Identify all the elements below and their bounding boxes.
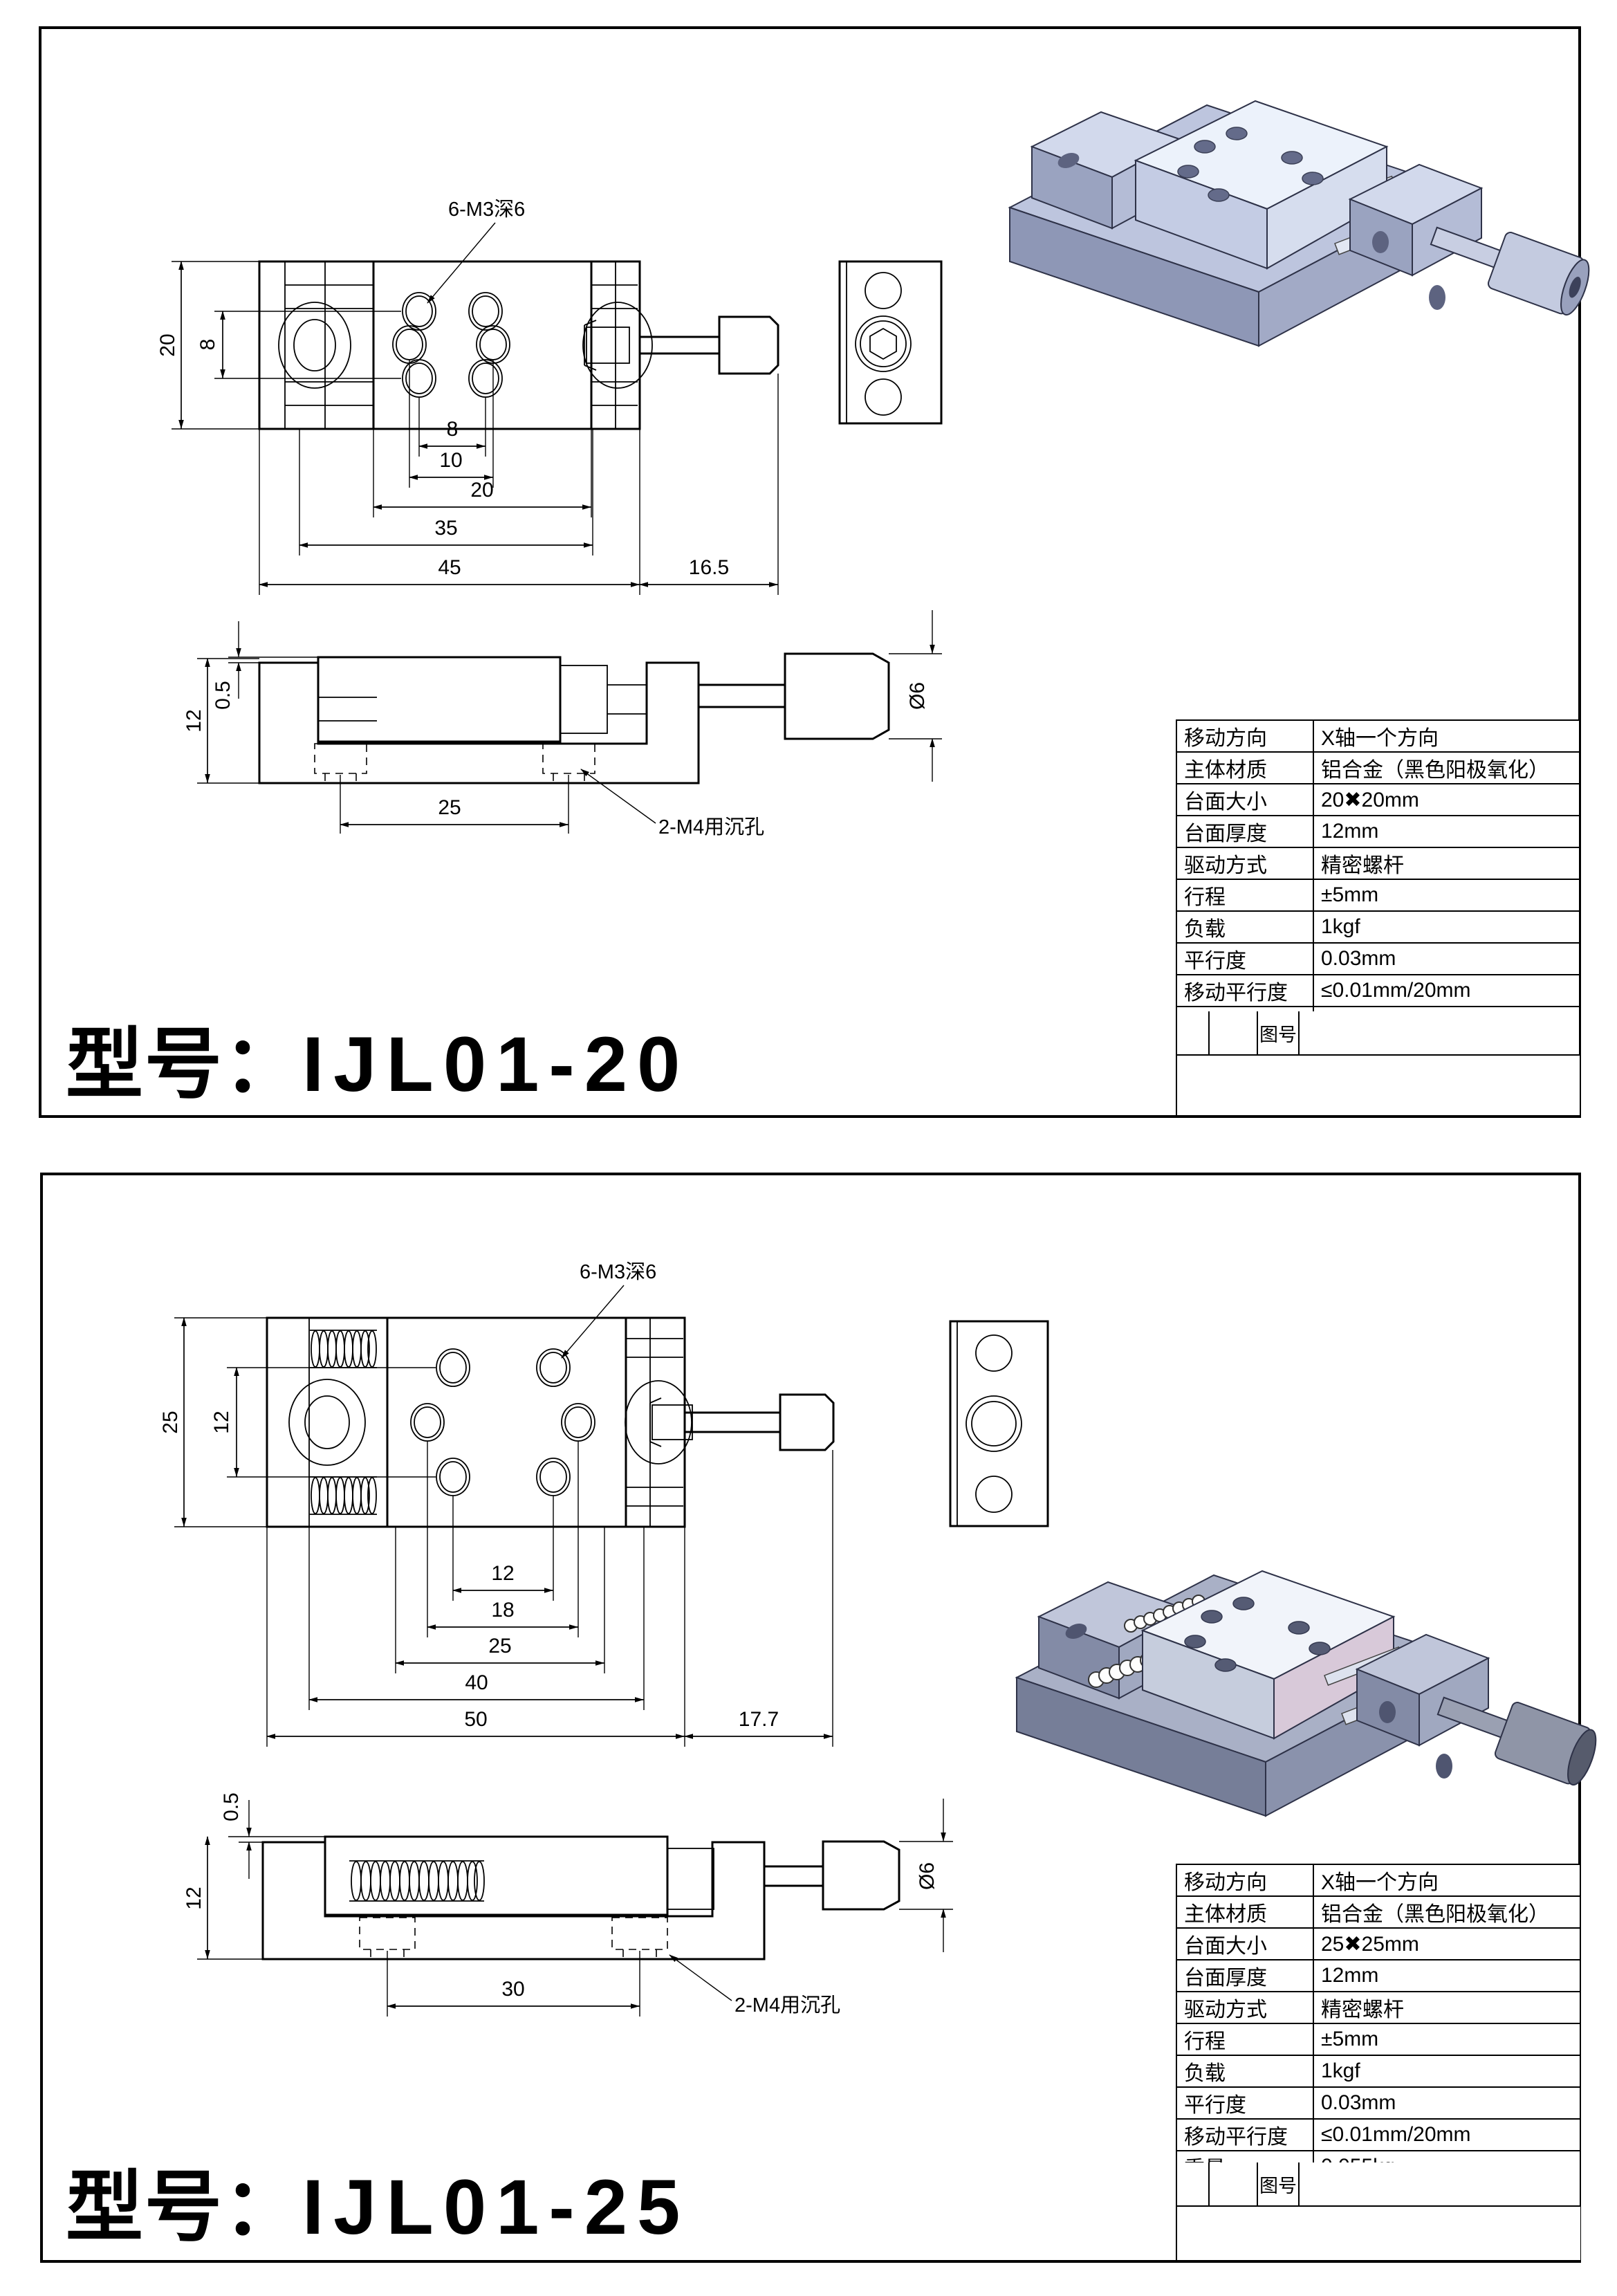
spec-label: 移动平行度 [1176, 2119, 1313, 2151]
view-top-20: 6-M3深6 20 8 8 10 20 35 45 [156, 199, 778, 595]
spec-label: 台面大小 [1176, 1928, 1313, 1960]
spec-label: 台面厚度 [1176, 1960, 1313, 1992]
spec-label: 行程 [1176, 879, 1313, 911]
spec-value: 25✖25mm [1313, 1928, 1580, 1960]
dim-holerows-25: 12 [210, 1411, 233, 1433]
spec-label: 平行度 [1176, 2087, 1313, 2119]
spec-row: 移动方向X轴一个方向 [1176, 720, 1580, 752]
spec-row: 驱动方式精密螺杆 [1176, 1992, 1580, 2023]
spec-label: 移动方向 [1176, 720, 1313, 752]
spec-label: 移动平行度 [1176, 975, 1313, 1007]
spec-row: 平行度0.03mm [1176, 943, 1580, 975]
spec-value: 精密螺杆 [1313, 1992, 1580, 2023]
model-title-25: 型号：IJL01-25 [66, 2145, 690, 2257]
spec-row: 台面厚度12mm [1176, 816, 1580, 847]
cone-symbol-cell [1210, 2162, 1258, 2205]
spec-label: 行程 [1176, 2023, 1313, 2055]
dim-20-20: 20 [470, 479, 493, 502]
m3-holes-25 [411, 1349, 595, 1496]
spec-row: 负载1kgf [1176, 911, 1580, 943]
spec-row: 移动方向X轴一个方向 [1176, 1864, 1580, 1896]
spec-label: 负载 [1176, 2055, 1313, 2087]
dim-span-25: 30 [501, 1978, 524, 2001]
spec-label: 台面大小 [1176, 784, 1313, 816]
dim-165-20: 16.5 [689, 556, 729, 579]
dim-shaftdia-25: Ø6 [916, 1862, 939, 1890]
title-block-row-20: 图号 [1176, 1011, 1580, 1056]
title-block-empty-20 [1176, 1056, 1580, 1115]
dim-height-20: 20 [156, 333, 179, 356]
m3-holes-20 [393, 293, 510, 397]
spec-label: 台面厚度 [1176, 816, 1313, 847]
model-prefix: 型号： [66, 2164, 302, 2250]
projection-symbol-cell [1177, 1011, 1210, 1054]
spec-row: 行程±5mm [1176, 2023, 1580, 2055]
spec-value: ≤0.01mm/20mm [1313, 2119, 1580, 2151]
spec-row: 主体材质铝合金（黑色阳极氧化） [1176, 752, 1580, 784]
figure-no-value [1300, 1011, 1579, 1054]
title-block-empty-25 [1176, 2207, 1580, 2260]
spec-value: 铝合金（黑色阳极氧化） [1313, 1896, 1580, 1928]
model-number: IJL01-25 [302, 2164, 690, 2250]
projection-symbol-cell [1177, 2162, 1210, 2205]
dim-12-25: 12 [491, 1562, 514, 1585]
spec-table-20: 移动方向X轴一个方向 主体材质铝合金（黑色阳极氧化） 台面大小20✖20mm 台… [1176, 719, 1580, 1039]
spec-row: 平行度0.03mm [1176, 2087, 1580, 2119]
spec-value: 0.03mm [1313, 943, 1580, 975]
figure-no-value [1300, 2162, 1580, 2205]
view-side-25: 0.5 12 30 2-M4用沉孔 Ø6 [183, 1792, 953, 2017]
spec-value: 1kgf [1313, 2055, 1580, 2087]
figure-no-label: 图号 [1258, 1011, 1300, 1054]
spec-label: 负载 [1176, 911, 1313, 943]
view-end-25 [950, 1321, 1048, 1526]
render-3d-20 [1010, 101, 1595, 346]
spec-label: 移动方向 [1176, 1864, 1313, 1896]
spec-row: 移动平行度≤0.01mm/20mm [1176, 2119, 1580, 2151]
counterbore-note-25: 2-M4用沉孔 [734, 1994, 840, 2017]
spec-row: 行程±5mm [1176, 879, 1580, 911]
dim-thickness-25: 12 [183, 1886, 205, 1909]
dim-40-25: 40 [465, 1671, 488, 1694]
model-number: IJL01-20 [302, 1021, 690, 1108]
spec-value: 20✖20mm [1313, 784, 1580, 816]
spec-value: 铝合金（黑色阳极氧化） [1313, 752, 1580, 784]
dim-thickness-20: 12 [183, 709, 205, 732]
spec-row: 台面大小25✖25mm [1176, 1928, 1580, 1960]
spec-table-25: 移动方向X轴一个方向 主体材质铝合金（黑色阳极氧化） 台面大小25✖25mm 台… [1176, 1864, 1581, 2183]
title-block-row-25: 图号 [1176, 2162, 1581, 2207]
dim-177-25: 17.7 [739, 1708, 779, 1731]
model-prefix: 型号： [66, 1021, 302, 1108]
spec-row: 移动平行度≤0.01mm/20mm [1176, 975, 1580, 1007]
render-3d-25 [1017, 1571, 1602, 1816]
spec-label: 平行度 [1176, 943, 1313, 975]
spec-row: 台面大小20✖20mm [1176, 784, 1580, 816]
spec-value: 12mm [1313, 1960, 1580, 1992]
spec-row: 负载1kgf [1176, 2055, 1580, 2087]
dim-step-25: 0.5 [220, 1792, 243, 1821]
dim-shaftdia-20: Ø6 [906, 682, 929, 710]
spec-value: 0.03mm [1313, 2087, 1580, 2119]
figure-no-label: 图号 [1258, 2162, 1300, 2205]
spec-value: 精密螺杆 [1313, 847, 1580, 879]
dim-span-20: 25 [438, 796, 461, 819]
dim-height-25: 25 [159, 1411, 182, 1433]
spec-label: 主体材质 [1176, 752, 1313, 784]
thread-note-25: 6-M3深6 [580, 1261, 656, 1283]
model-title-20: 型号：IJL01-20 [66, 1002, 690, 1114]
spec-row: 台面厚度12mm [1176, 1960, 1580, 1992]
dim-35-20: 35 [434, 517, 457, 540]
spec-value: ±5mm [1313, 879, 1580, 911]
dim-10-20: 10 [439, 449, 462, 472]
spec-row: 驱动方式精密螺杆 [1176, 847, 1580, 879]
spec-row: 主体材质铝合金（黑色阳极氧化） [1176, 1896, 1580, 1928]
dim-45-20: 45 [438, 556, 461, 579]
hex-socket-icon [870, 329, 896, 359]
dim-18-25: 18 [491, 1599, 514, 1622]
drawing-sheet: 6-M3深6 20 8 8 10 20 35 45 [0, 0, 1617, 2296]
cone-symbol-cell [1210, 1011, 1258, 1054]
spec-value: ±5mm [1313, 2023, 1580, 2055]
dim-step-20: 0.5 [212, 681, 234, 710]
spec-label: 主体材质 [1176, 1896, 1313, 1928]
spring-top-25 [310, 1330, 377, 1514]
spec-value: 12mm [1313, 816, 1580, 847]
dim-50-25: 50 [464, 1708, 487, 1731]
spec-label: 驱动方式 [1176, 847, 1313, 879]
spec-value: X轴一个方向 [1313, 1864, 1580, 1896]
thread-note-20: 6-M3深6 [448, 199, 525, 221]
view-end-20 [840, 261, 941, 423]
spec-value: ≤0.01mm/20mm [1313, 975, 1580, 1007]
dim-8-20: 8 [447, 418, 459, 441]
spring-side-25 [349, 1861, 484, 1901]
dim-holerows-20: 8 [196, 339, 219, 351]
view-side-20: 12 0.5 25 2-M4用沉孔 Ø6 [183, 610, 942, 838]
view-top-25: 6-M3深6 25 12 12 18 25 40 50 17.7 [159, 1261, 833, 1747]
dim-25-25: 25 [488, 1635, 511, 1657]
counterbore-note-20: 2-M4用沉孔 [658, 816, 764, 838]
spec-label: 驱动方式 [1176, 1992, 1313, 2023]
spec-value: 1kgf [1313, 911, 1580, 943]
spec-value: X轴一个方向 [1313, 720, 1580, 752]
